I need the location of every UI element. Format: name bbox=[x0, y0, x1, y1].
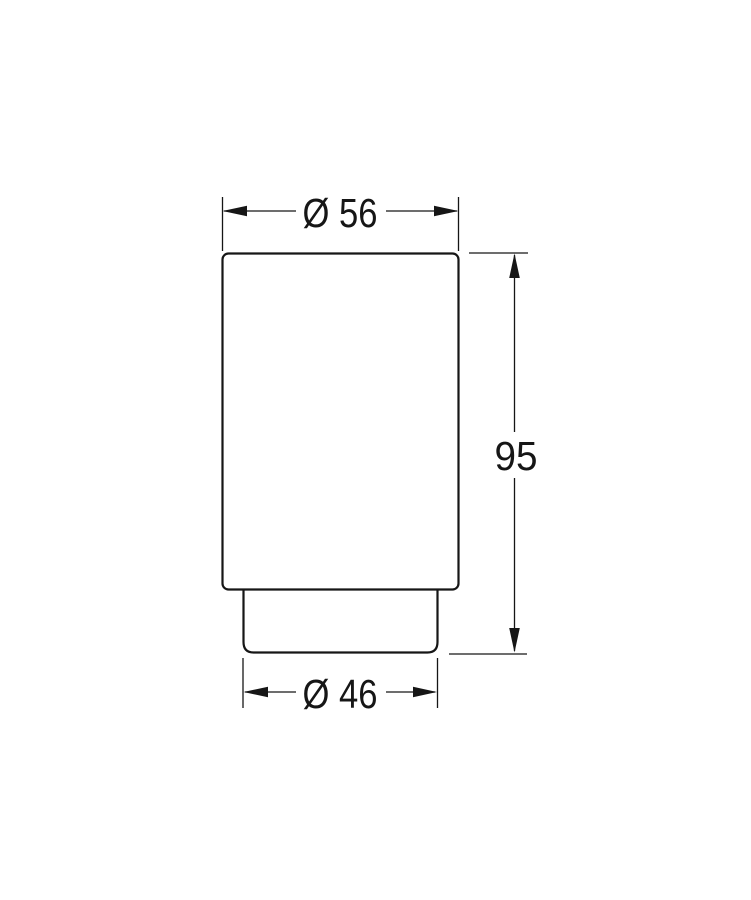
object-outlines bbox=[223, 254, 459, 653]
base-collar-outline bbox=[244, 589, 438, 653]
dimension-label-bottom-diameter: Ø 46 bbox=[303, 671, 378, 717]
dimension-label-height: 95 bbox=[495, 433, 538, 479]
body-outline bbox=[223, 254, 459, 590]
arrowhead-left-bottom-diameter bbox=[244, 687, 269, 697]
technical-drawing: Ø 56 95 Ø 46 bbox=[0, 0, 751, 900]
arrowhead-down-height bbox=[509, 628, 520, 653]
drawing-root: Ø 56 95 Ø 46 bbox=[223, 190, 538, 717]
arrowhead-left-top-diameter bbox=[223, 206, 248, 216]
drawing-page: Ø 56 95 Ø 46 bbox=[0, 0, 751, 900]
arrowhead-right-bottom-diameter bbox=[413, 687, 437, 697]
arrowhead-up-height bbox=[509, 254, 520, 279]
arrowhead-right-top-diameter bbox=[434, 206, 459, 216]
dimension-label-top-diameter: Ø 56 bbox=[303, 190, 378, 236]
